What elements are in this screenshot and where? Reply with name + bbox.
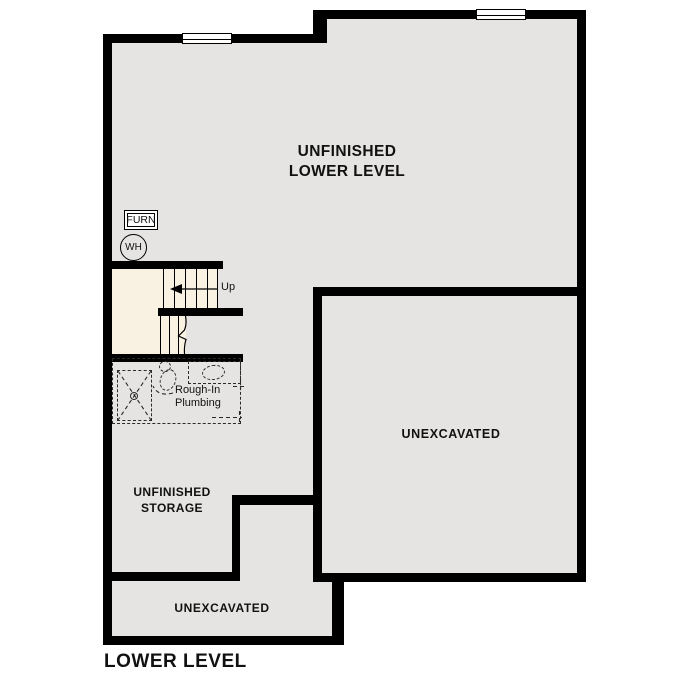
page-title: LOWER LEVEL [104,651,247,673]
room-label-text: UNEXCAVATED [174,601,269,615]
room-label-unfinished-storage: UNFINISHED STORAGE [97,484,247,516]
toilet-tank-rough-in-icon [159,361,171,372]
room-label-unexcavated-large: UNEXCAVATED [351,427,551,441]
stairwell-lower-fill [112,316,186,354]
stairwell-landing-fill [112,308,158,316]
shower-rough-in-icon [117,370,152,421]
wall-left [103,34,112,645]
window-top-right [476,9,526,20]
water-heater-icon: WH [120,234,147,261]
wall-stair-top [112,261,223,269]
room-label-line: UNFINISHED [97,484,247,500]
wall-right [577,10,586,582]
room-label-lower-level: UNFINISHED LOWER LEVEL [247,142,447,182]
window-pane-line [477,15,525,16]
furnace-label: FURN [127,213,155,227]
wall-storage-bottom [103,572,240,581]
floor-upper-right [321,19,577,43]
wall-unexcavated-bottom [313,573,586,582]
wall-small-room-right [332,573,344,645]
window-pane-line [183,39,231,40]
plumbing-label-line: Plumbing [175,397,221,410]
room-label-line: LOWER LEVEL [247,162,447,182]
room-label-line: STORAGE [97,500,247,516]
wall-small-room-bottom [103,636,344,645]
room-label-text: UNEXCAVATED [402,427,501,441]
rough-in-plumbing-label: Rough-In Plumbing [175,384,221,410]
stair-up-label: Up [221,281,235,293]
water-heater-label: WH [125,242,142,253]
window-top-left [182,33,232,44]
room-label-unexcavated-small: UNEXCAVATED [137,601,307,615]
room-label-line: UNFINISHED [247,142,447,162]
wall-unexcavated-top [313,287,586,296]
wall-top-right [313,10,586,19]
stairwell-upper-fill [112,269,218,308]
furnace-box-icon: FURN [124,210,158,230]
wall-stair-mid [158,308,243,316]
wall-unexcavated-left [313,287,322,582]
plumbing-label-line: Rough-In [175,384,221,397]
floor-plan-page: FURN WH [0,0,687,687]
